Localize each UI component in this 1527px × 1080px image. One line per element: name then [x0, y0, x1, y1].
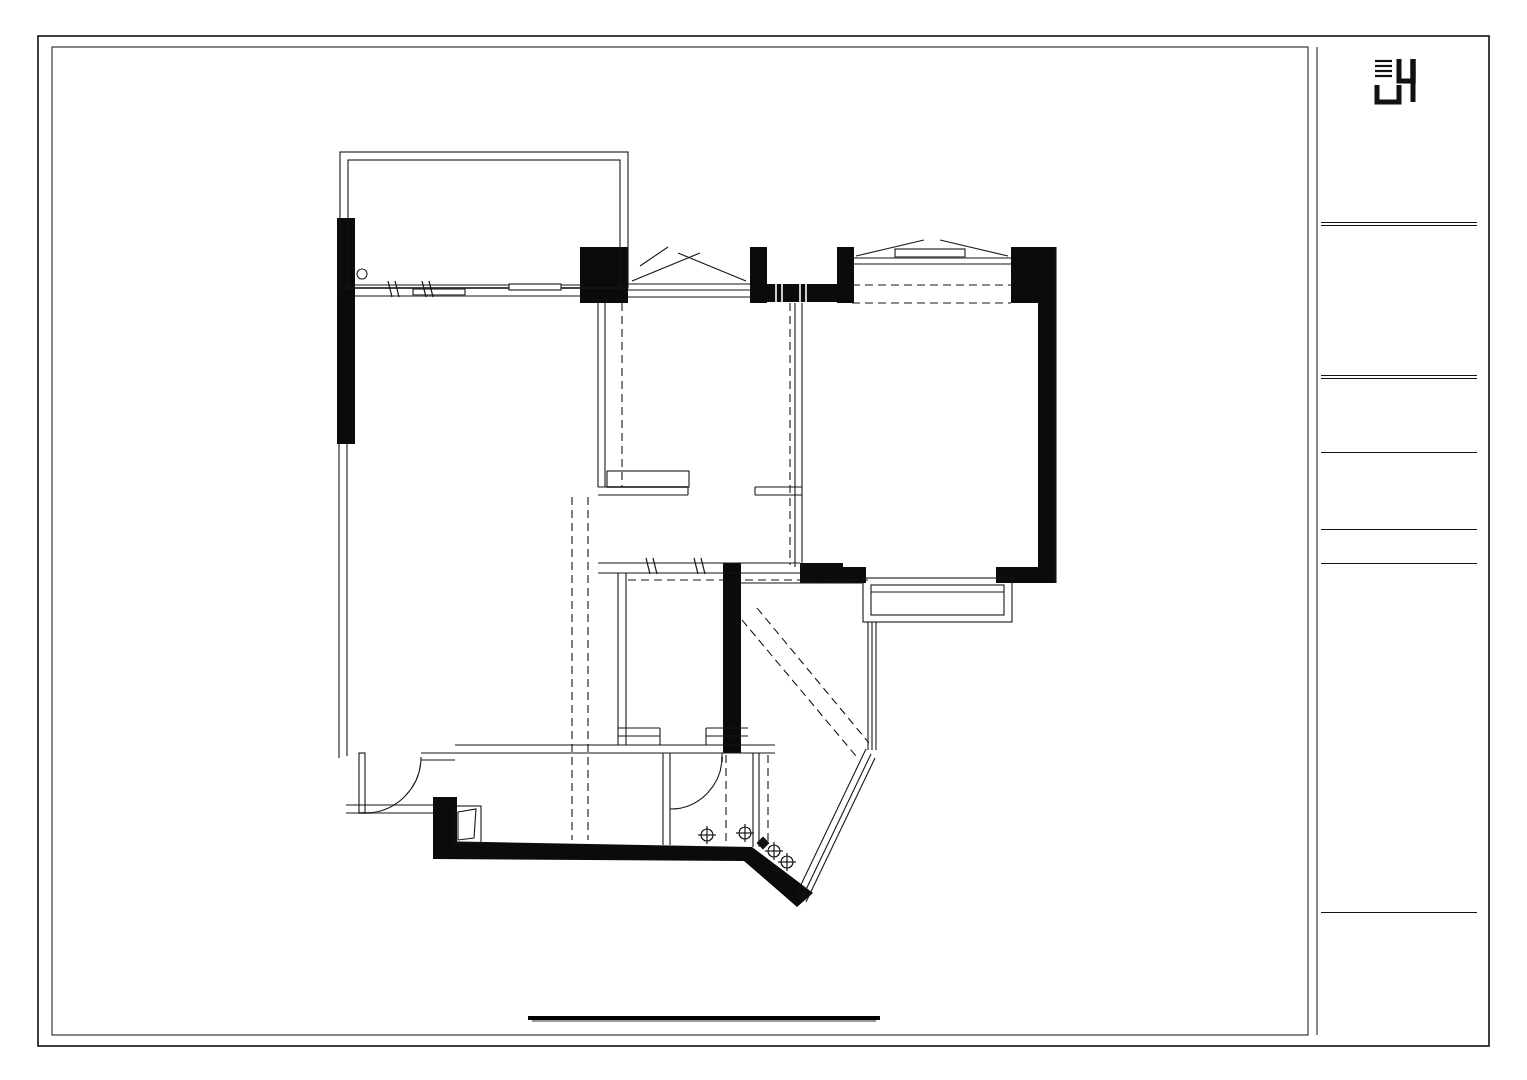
drawing-title-section	[1321, 452, 1477, 529]
dashed-lines	[572, 285, 1011, 845]
contract-award-label-cn	[1321, 533, 1477, 534]
logo-section	[1321, 47, 1477, 222]
project-title-label-cn	[1321, 382, 1477, 383]
contract-award-section	[1321, 529, 1477, 563]
sheet-border	[38, 36, 1489, 1046]
explain-text	[1321, 917, 1477, 927]
project-title-section	[1321, 375, 1477, 452]
explain-section	[1321, 912, 1477, 1035]
drawing-title-label-cn	[1321, 456, 1477, 457]
footer-title	[528, 986, 880, 1020]
walls-thin	[339, 152, 1056, 902]
logo-mark-icon	[1321, 47, 1477, 139]
general-note-text	[1321, 230, 1477, 234]
floor-plan-canvas	[0, 0, 1527, 1080]
general-note-section	[1321, 222, 1477, 375]
title-block	[1321, 47, 1477, 1035]
construction-unit-label-en	[1321, 564, 1477, 567]
drawing-sheet	[0, 0, 1527, 1080]
construction-unit-section	[1321, 563, 1477, 633]
